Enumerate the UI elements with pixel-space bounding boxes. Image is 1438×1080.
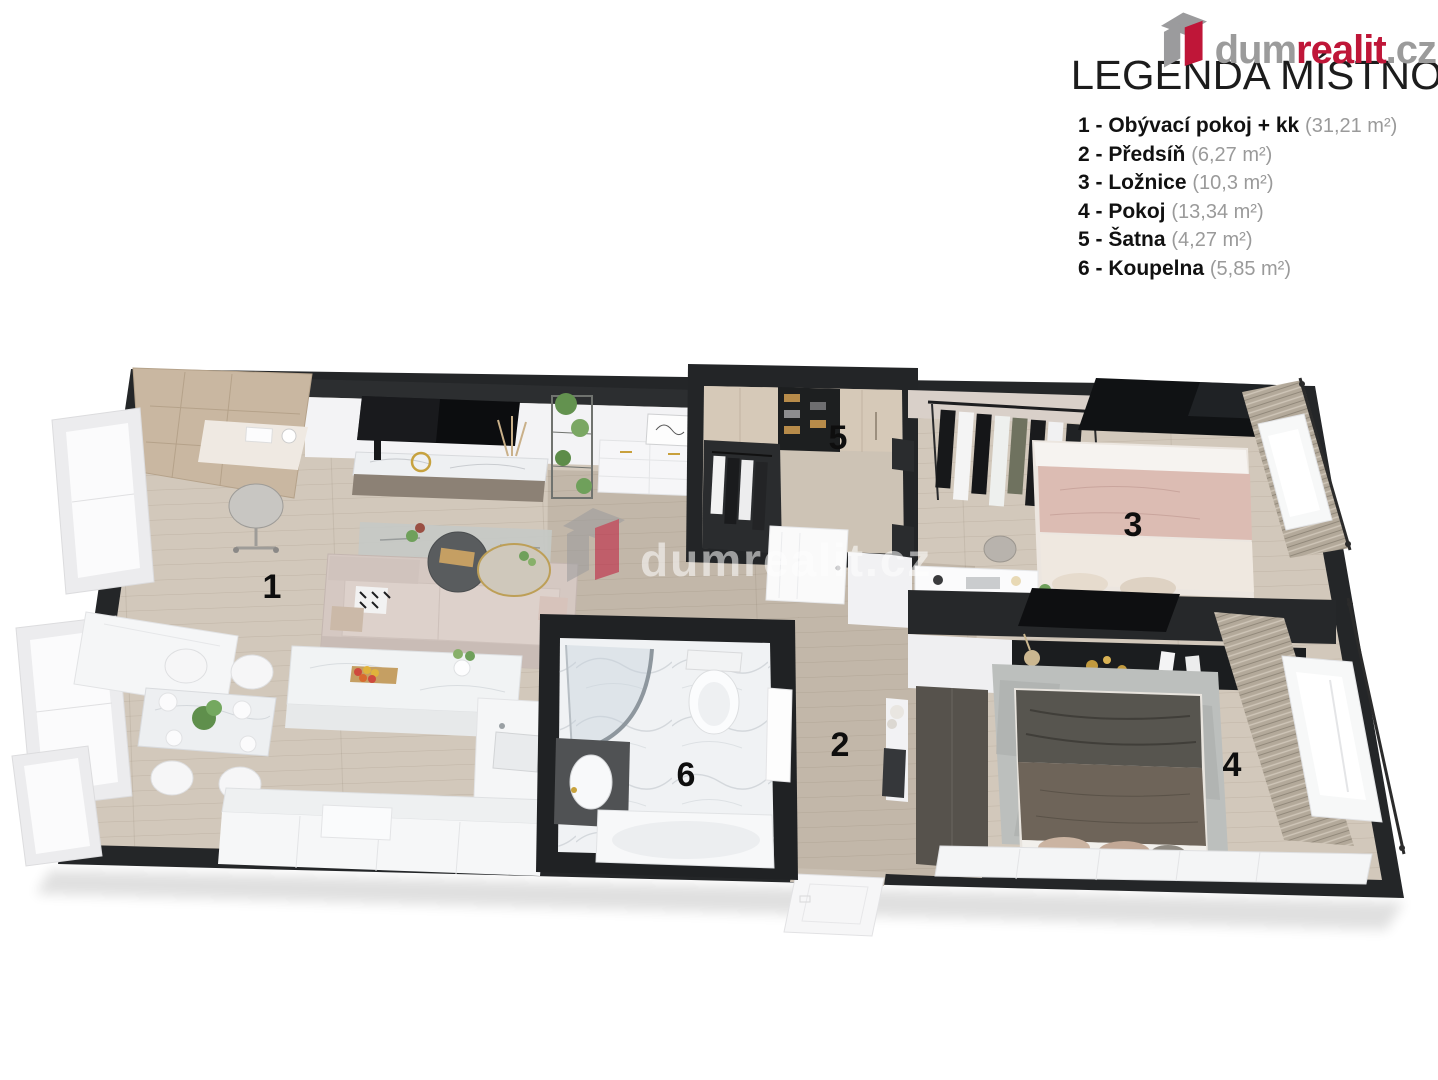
bed3 [1032, 440, 1254, 599]
papers [246, 427, 273, 443]
entry-door-leaf [784, 874, 884, 936]
legend-row-6: 6 - Koupelna (5,85 m²) [1078, 255, 1424, 284]
blush-blanket [1038, 466, 1252, 540]
plate-decor [282, 429, 296, 443]
pillow [330, 606, 364, 632]
room-number-1: 1 [263, 568, 282, 606]
legend-row-1: 1 - Obývací pokoj + kk (31,21 m²) [1078, 112, 1424, 141]
brand-wordmark: dumrealit.cz [1215, 30, 1436, 70]
legend-room-label: 4 - Pokoj [1078, 200, 1166, 223]
room-number-6: 6 [677, 756, 696, 794]
watermark-text: dumrealit.cz [640, 534, 932, 586]
toilet [686, 650, 742, 734]
bed4 [1014, 688, 1208, 863]
legend-row-2: 2 - Předsíň (6,27 m²) [1078, 141, 1424, 170]
legend-room-label: 5 - Šatna [1078, 228, 1166, 251]
brand-realit: realit [1296, 28, 1386, 72]
gold-faucet [571, 787, 577, 793]
legend-room-area: (5,85 m²) [1210, 258, 1291, 280]
legend-row-5: 5 - Šatna (4,27 m²) [1078, 226, 1424, 255]
brown-duvet [1018, 762, 1206, 846]
legend-room-area: (31,21 m²) [1305, 115, 1397, 137]
vase [454, 660, 470, 676]
room-number-4: 4 [1223, 746, 1242, 784]
photo-frame [1159, 651, 1176, 672]
legend-room-area: (13,34 m²) [1171, 201, 1263, 223]
room-number-2: 2 [831, 726, 850, 764]
tv-panel [1018, 588, 1180, 632]
room-legend: 1 - Obývací pokoj + kk (31,21 m²) 2 - Př… [1078, 112, 1424, 284]
living-room [305, 379, 703, 502]
bathroom-door [766, 688, 792, 782]
kitchen-sink [493, 732, 540, 772]
desk-lamp [1011, 576, 1021, 586]
room-number-5: 5 [829, 419, 848, 457]
legend-room-label: 1 - Obývací pokoj + kk [1078, 114, 1299, 137]
brand-cz: .cz [1386, 28, 1436, 72]
legend-room-label: 3 - Ložnice [1078, 171, 1187, 194]
legend-room-label: 2 - Předsíň [1078, 143, 1185, 166]
bathtub [596, 810, 774, 868]
brand-dum: dum [1215, 28, 1296, 72]
art-frame [646, 414, 690, 446]
floorplan-page: dumrealit.cz LEGENDA MÍSTNOSTÍ 1 - Obýva… [0, 0, 1438, 1080]
legend-row-4: 4 - Pokoj (13,34 m²) [1078, 198, 1424, 227]
room-number-3: 3 [1124, 506, 1143, 544]
legend-room-area: (10,3 m²) [1192, 172, 1273, 194]
hanging-jacket [882, 748, 906, 798]
dumrealit-logo-icon [1161, 10, 1207, 70]
desk-chair [984, 536, 1016, 562]
gray-blanket [1016, 690, 1202, 768]
legend-room-label: 6 - Koupelna [1078, 257, 1204, 280]
island-block [321, 805, 392, 840]
legend-room-area: (4,27 m²) [1171, 229, 1252, 251]
statue-decor [374, 440, 381, 460]
legend-room-area: (6,27 m²) [1191, 144, 1272, 166]
laptop [966, 577, 1000, 589]
brand-logo: dumrealit.cz [1161, 10, 1436, 70]
bathroom [536, 614, 798, 880]
faucet [499, 723, 505, 729]
legend-row-3: 3 - Ložnice (10,3 m²) [1078, 169, 1424, 198]
